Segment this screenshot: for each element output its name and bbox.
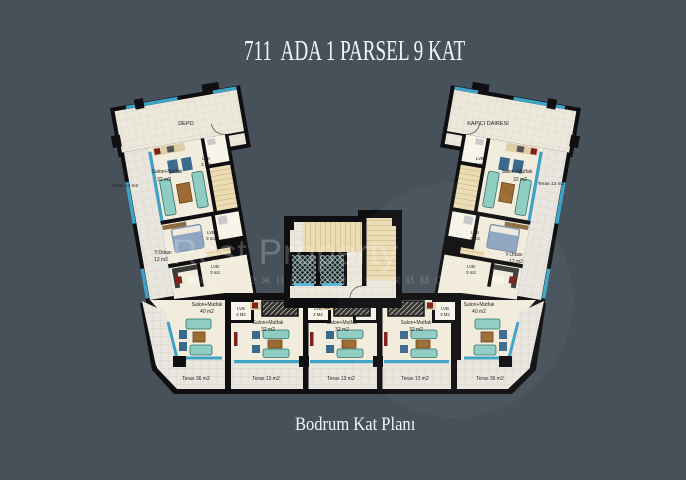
svg-text:Teras 13 m2: Teras 13 m2 <box>327 376 355 382</box>
svg-text:DEPO: DEPO <box>178 121 194 127</box>
svg-text:LVB: LVB <box>314 306 322 311</box>
svg-text:Salon+Mutfak: Salon+Mutfak <box>152 169 183 175</box>
svg-text:Teras 13 m2: Teras 13 m2 <box>112 183 139 189</box>
svg-text:3 M2: 3 M2 <box>313 312 323 317</box>
svg-text:3 m2: 3 m2 <box>475 162 485 167</box>
svg-text:3 m2: 3 m2 <box>201 162 211 167</box>
svg-text:Зарубежная недвижимость: Зарубежная недвижимость <box>182 271 485 287</box>
svg-text:32 m2: 32 m2 <box>157 177 171 183</box>
svg-text:LVB: LVB <box>237 306 245 311</box>
svg-text:LVB: LVB <box>202 156 210 161</box>
svg-text:Teras 13 m2: Teras 13 m2 <box>538 181 565 187</box>
svg-text:KAPICI DAIRESI: KAPICI DAIRESI <box>467 121 509 127</box>
svg-text:Y.Odası: Y.Odası <box>154 250 171 256</box>
svg-text:Salon+Mutfak: Salon+Mutfak <box>253 320 284 326</box>
svg-text:Salon+Mutfak: Salon+Mutfak <box>192 302 223 308</box>
svg-text:12 m2: 12 m2 <box>154 257 168 263</box>
svg-text:32 m2: 32 m2 <box>261 327 275 333</box>
svg-text:Rest Property: Rest Property <box>172 233 399 272</box>
svg-text:40 m2: 40 m2 <box>200 309 214 315</box>
svg-text:3 M2: 3 M2 <box>236 312 246 317</box>
svg-text:Teras 13 m2: Teras 13 m2 <box>252 376 280 382</box>
svg-text:Teras 36 m2: Teras 36 m2 <box>182 376 210 382</box>
svg-text:Salon+Mutfak: Salon+Mutfak <box>502 169 533 175</box>
svg-text:LVB: LVB <box>476 156 484 161</box>
svg-text:32 m2: 32 m2 <box>513 177 527 183</box>
